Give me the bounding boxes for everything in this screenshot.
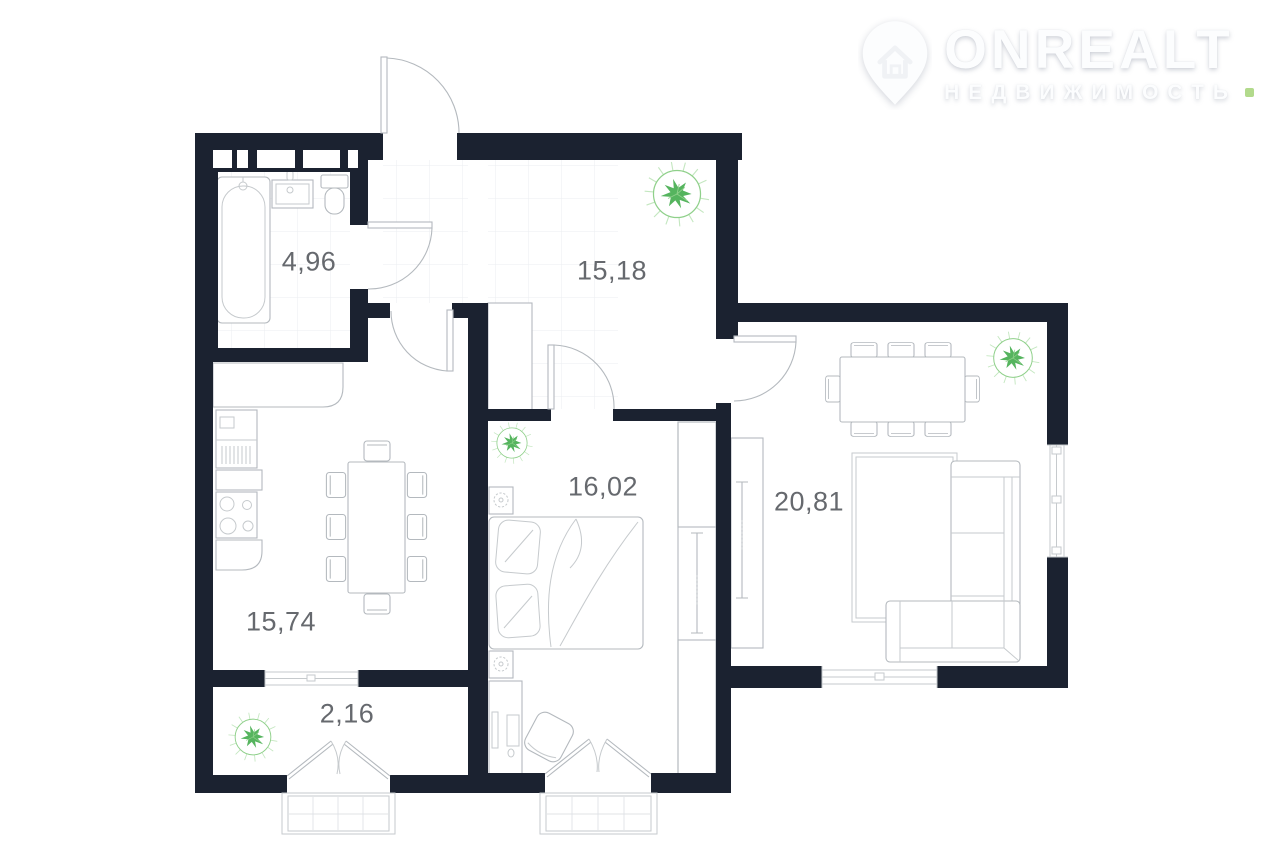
room-area-label-bedroom: 16,02	[568, 472, 638, 503]
porch-right	[540, 793, 657, 834]
floor-plan-page: 4,96 15,18 15,74 16,02 20,81 2,16 ONREAL…	[0, 0, 1280, 854]
window-kitchen-balcony	[265, 670, 358, 687]
kitchen-door	[391, 310, 453, 371]
entrance-door	[381, 57, 459, 133]
kitchen-counter-bottom	[216, 540, 262, 570]
logo-brand-text: ONREALT	[944, 22, 1254, 77]
floor-plan-drawing	[0, 0, 1280, 854]
hallway-closet	[488, 303, 532, 410]
room-area-label-bathroom: 4,96	[282, 247, 337, 278]
logo-text: ONREALT НЕДВИЖИМОСТЬ	[944, 22, 1254, 105]
kitchen-sink-unit	[216, 410, 257, 468]
logo-accent-dot	[1245, 88, 1254, 97]
plant-bedroom	[491, 422, 532, 463]
bathtub	[217, 177, 270, 323]
nightstand-top	[489, 487, 513, 514]
kitchen-counter-mid	[216, 470, 262, 490]
logo-pin-house-icon	[858, 16, 932, 110]
rug	[852, 453, 957, 622]
porch-left	[282, 793, 395, 834]
dining-table-kitchen	[326, 441, 426, 614]
logo-tagline-text: НЕДВИЖИМОСТЬ	[944, 81, 1237, 105]
desk-chair	[521, 709, 576, 765]
double-bed	[489, 517, 643, 649]
room-area-label-kitchen: 15,74	[246, 607, 316, 638]
wardrobe-rod	[691, 533, 703, 633]
living-room-door	[734, 336, 796, 401]
room-area-label-balcony: 2,16	[320, 699, 375, 730]
plant-balcony	[228, 713, 277, 762]
plant-living	[986, 332, 1039, 385]
living-wardrobe	[731, 438, 763, 648]
nightstand-bottom	[489, 651, 513, 678]
watermark-logo: ONREALT НЕДВИЖИМОСТЬ	[858, 16, 1254, 110]
room-area-label-living: 20,81	[774, 487, 844, 518]
window-living-south	[822, 666, 937, 688]
desk	[489, 681, 522, 777]
window-living-east	[1047, 445, 1068, 557]
dining-table-living	[826, 343, 980, 437]
plant-hallway	[645, 162, 709, 226]
kitchen-counter-top	[213, 363, 343, 407]
stove	[216, 492, 257, 538]
room-area-label-hallway: 15,18	[577, 256, 647, 287]
toilet	[321, 175, 348, 214]
bedroom-wardrobe	[678, 422, 716, 777]
french-door-balcony	[287, 741, 390, 779]
